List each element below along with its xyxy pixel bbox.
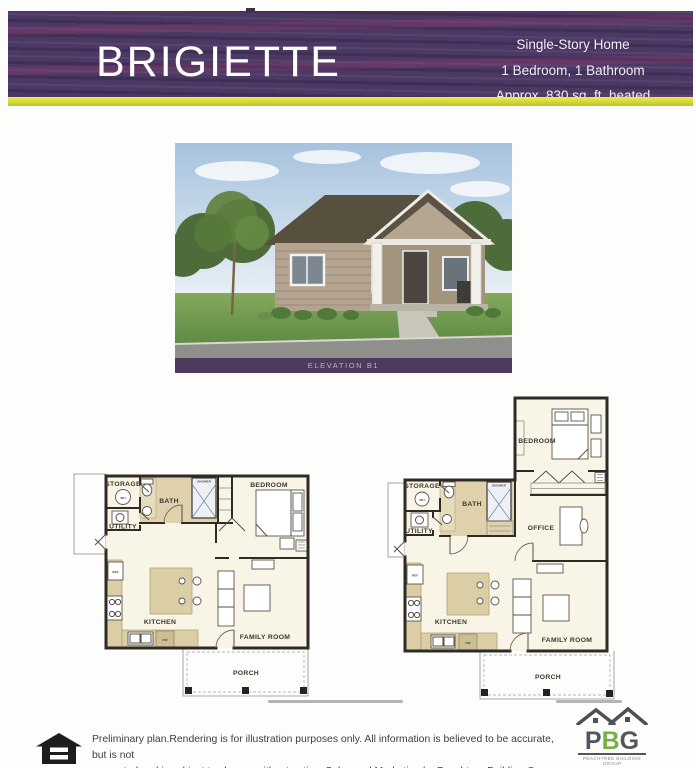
- kitchen-fixtures: REF DW: [405, 563, 499, 651]
- shower-label: SHOWER: [492, 484, 507, 488]
- porch-column-left: [372, 243, 382, 306]
- porch-column-right: [471, 243, 481, 306]
- room-label-kitchen: KITCHEN: [435, 619, 467, 626]
- room-label-porch: PORCH: [233, 670, 259, 677]
- pbg-rooflines-icon: [576, 706, 648, 725]
- kitchen-fixtures: REF DW: [106, 560, 201, 648]
- elevation-caption: ELEVATION B1: [175, 358, 512, 373]
- optional-area-outline: [388, 483, 405, 557]
- porch-chair: [457, 281, 472, 303]
- elevation-photo: ELEVATION B1: [175, 143, 512, 373]
- room-label-bath: BATH: [159, 498, 179, 505]
- shower-stall: [487, 482, 511, 521]
- dishwasher-label: DW: [162, 638, 167, 642]
- water-heater-label: WH: [419, 498, 425, 502]
- summary-line-2: 1 Bedroom, 1 Bathroom: [467, 58, 679, 84]
- scan-artifact: [246, 8, 255, 13]
- fridge-label: REF: [412, 574, 418, 578]
- pbg-tagline: PEACHTREE BUILDING GROUP: [574, 756, 650, 766]
- room-label-bedroom: BEDROOM: [250, 482, 288, 489]
- shower-stall: [192, 478, 216, 518]
- porch-column: [242, 687, 249, 694]
- front-door: [403, 251, 428, 304]
- shower-label: SHOWER: [197, 480, 212, 484]
- pbg-logo: PBG PEACHTREE BUILDING GROUP pbgbuilt.co…: [574, 706, 650, 768]
- kitchen-island: [150, 568, 192, 614]
- disclaimer-line-2: warranted and is subject to change witho…: [92, 764, 570, 768]
- room-label-utility: UTILITY: [405, 528, 433, 535]
- room-label-porch: PORCH: [535, 674, 561, 681]
- disclaimer-line-1: Preliminary plan.Rendering is for illust…: [92, 732, 570, 764]
- room-label-kitchen: KITCHEN: [144, 619, 176, 626]
- room-label-bedroom: BEDROOM: [518, 438, 556, 445]
- utility-fixtures: [112, 511, 128, 524]
- scan-artifact: [268, 700, 403, 703]
- utility-fixtures: [411, 513, 428, 527]
- room-label-family-room: FAMILY ROOM: [240, 634, 291, 641]
- pbg-letters: PBG: [574, 730, 650, 752]
- pbg-letter-g: G: [620, 727, 639, 755]
- page-title: BRIGIETTE: [96, 38, 341, 87]
- scan-artifact: [556, 700, 622, 703]
- header-banner: BRIGIETTE Single-Story Home 1 Bedroom, 1…: [8, 11, 693, 97]
- fridge-label: REF: [112, 570, 118, 574]
- house-rendering: [175, 143, 512, 373]
- room-label-bath: BATH: [462, 501, 482, 508]
- room-label-utility: UTILITY: [109, 524, 137, 531]
- room-label-office: OFFICE: [528, 525, 555, 532]
- equal-housing-icon: [36, 733, 82, 764]
- room-label-family-room: FAMILY ROOM: [542, 637, 593, 644]
- flyer-page: BRIGIETTE Single-Story Home 1 Bedroom, 1…: [0, 0, 696, 768]
- storage-fixtures: WH: [116, 490, 131, 505]
- banner-accent-stripe: [8, 97, 693, 106]
- porch-column: [300, 687, 307, 694]
- pbg-letter-b: B: [602, 727, 620, 755]
- optional-area-outline: [74, 474, 106, 554]
- dishwasher-label: DW: [465, 641, 470, 645]
- water-heater-label: WH: [120, 496, 126, 500]
- disclaimer-text: Preliminary plan.Rendering is for illust…: [92, 732, 570, 768]
- room-label-storage: STORAGE: [105, 481, 141, 488]
- pbg-letter-p: P: [585, 727, 602, 755]
- storage-fixtures: WH: [415, 492, 429, 506]
- porch-column: [606, 690, 613, 697]
- floor-plan-b: WH SHOWER: [385, 393, 670, 705]
- porch-column: [185, 687, 192, 694]
- floor-plan-a: WH SHOWER: [68, 468, 313, 703]
- summary-line-1: Single-Story Home: [467, 32, 679, 58]
- room-label-storage: STORAGE: [404, 483, 440, 490]
- porch-column: [481, 689, 488, 696]
- kitchen-island: [447, 573, 489, 615]
- porch-column: [543, 689, 550, 696]
